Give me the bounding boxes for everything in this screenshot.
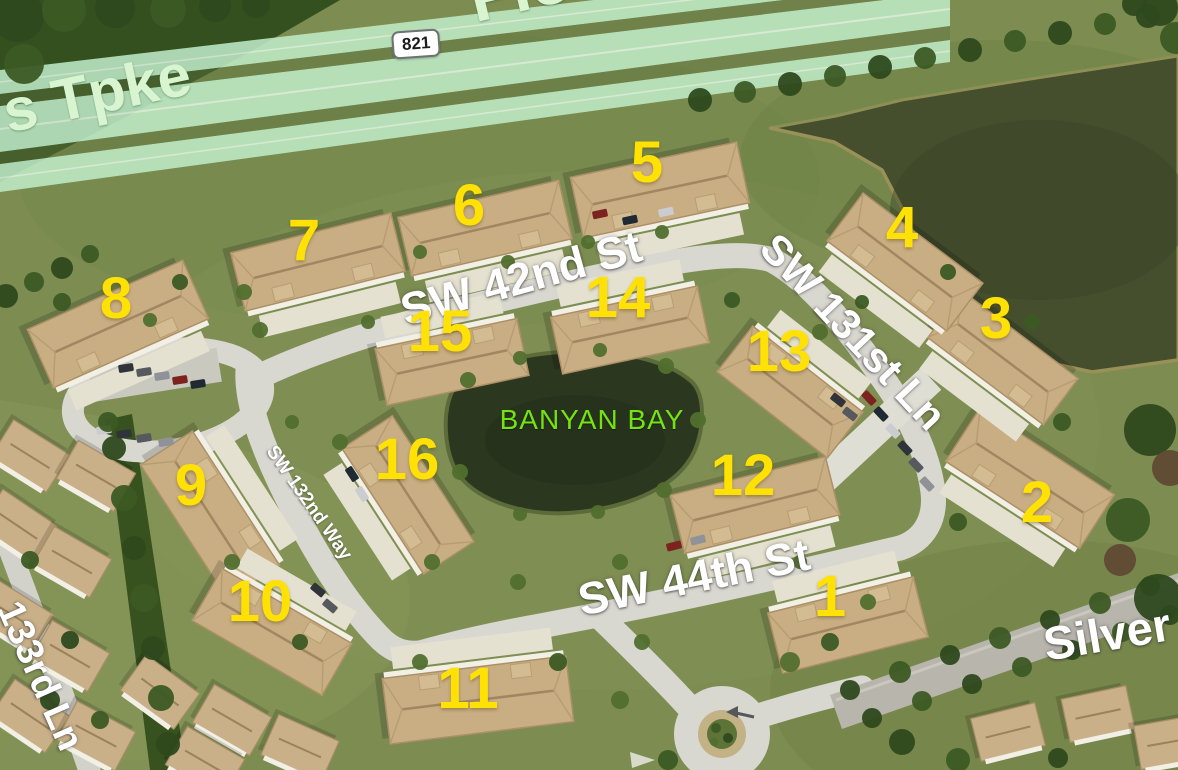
unit-marker-3: 3 xyxy=(980,290,1012,348)
aerial-map[interactable]: Florida's Tpke 's Tpke 821 SW 42nd St SW… xyxy=(0,0,1178,770)
place-label-banyan-bay: BANYAN BAY xyxy=(500,406,685,434)
unit-marker-13: 13 xyxy=(747,323,812,381)
unit-marker-9: 9 xyxy=(175,457,207,515)
unit-marker-10: 10 xyxy=(228,573,293,631)
unit-marker-11: 11 xyxy=(437,660,498,718)
highway-821-shield: 821 xyxy=(391,28,441,59)
unit-marker-4: 4 xyxy=(886,199,918,257)
unit-marker-5: 5 xyxy=(631,134,663,192)
unit-marker-16: 16 xyxy=(375,431,440,489)
unit-marker-14: 14 xyxy=(586,269,651,327)
unit-marker-1: 1 xyxy=(814,568,846,626)
unit-marker-2: 2 xyxy=(1021,474,1053,532)
unit-marker-6: 6 xyxy=(453,177,485,235)
unit-marker-8: 8 xyxy=(100,270,132,328)
unit-marker-15: 15 xyxy=(408,303,473,361)
satellite-imagery xyxy=(0,0,1178,770)
unit-marker-7: 7 xyxy=(288,212,320,270)
unit-marker-12: 12 xyxy=(711,447,776,505)
